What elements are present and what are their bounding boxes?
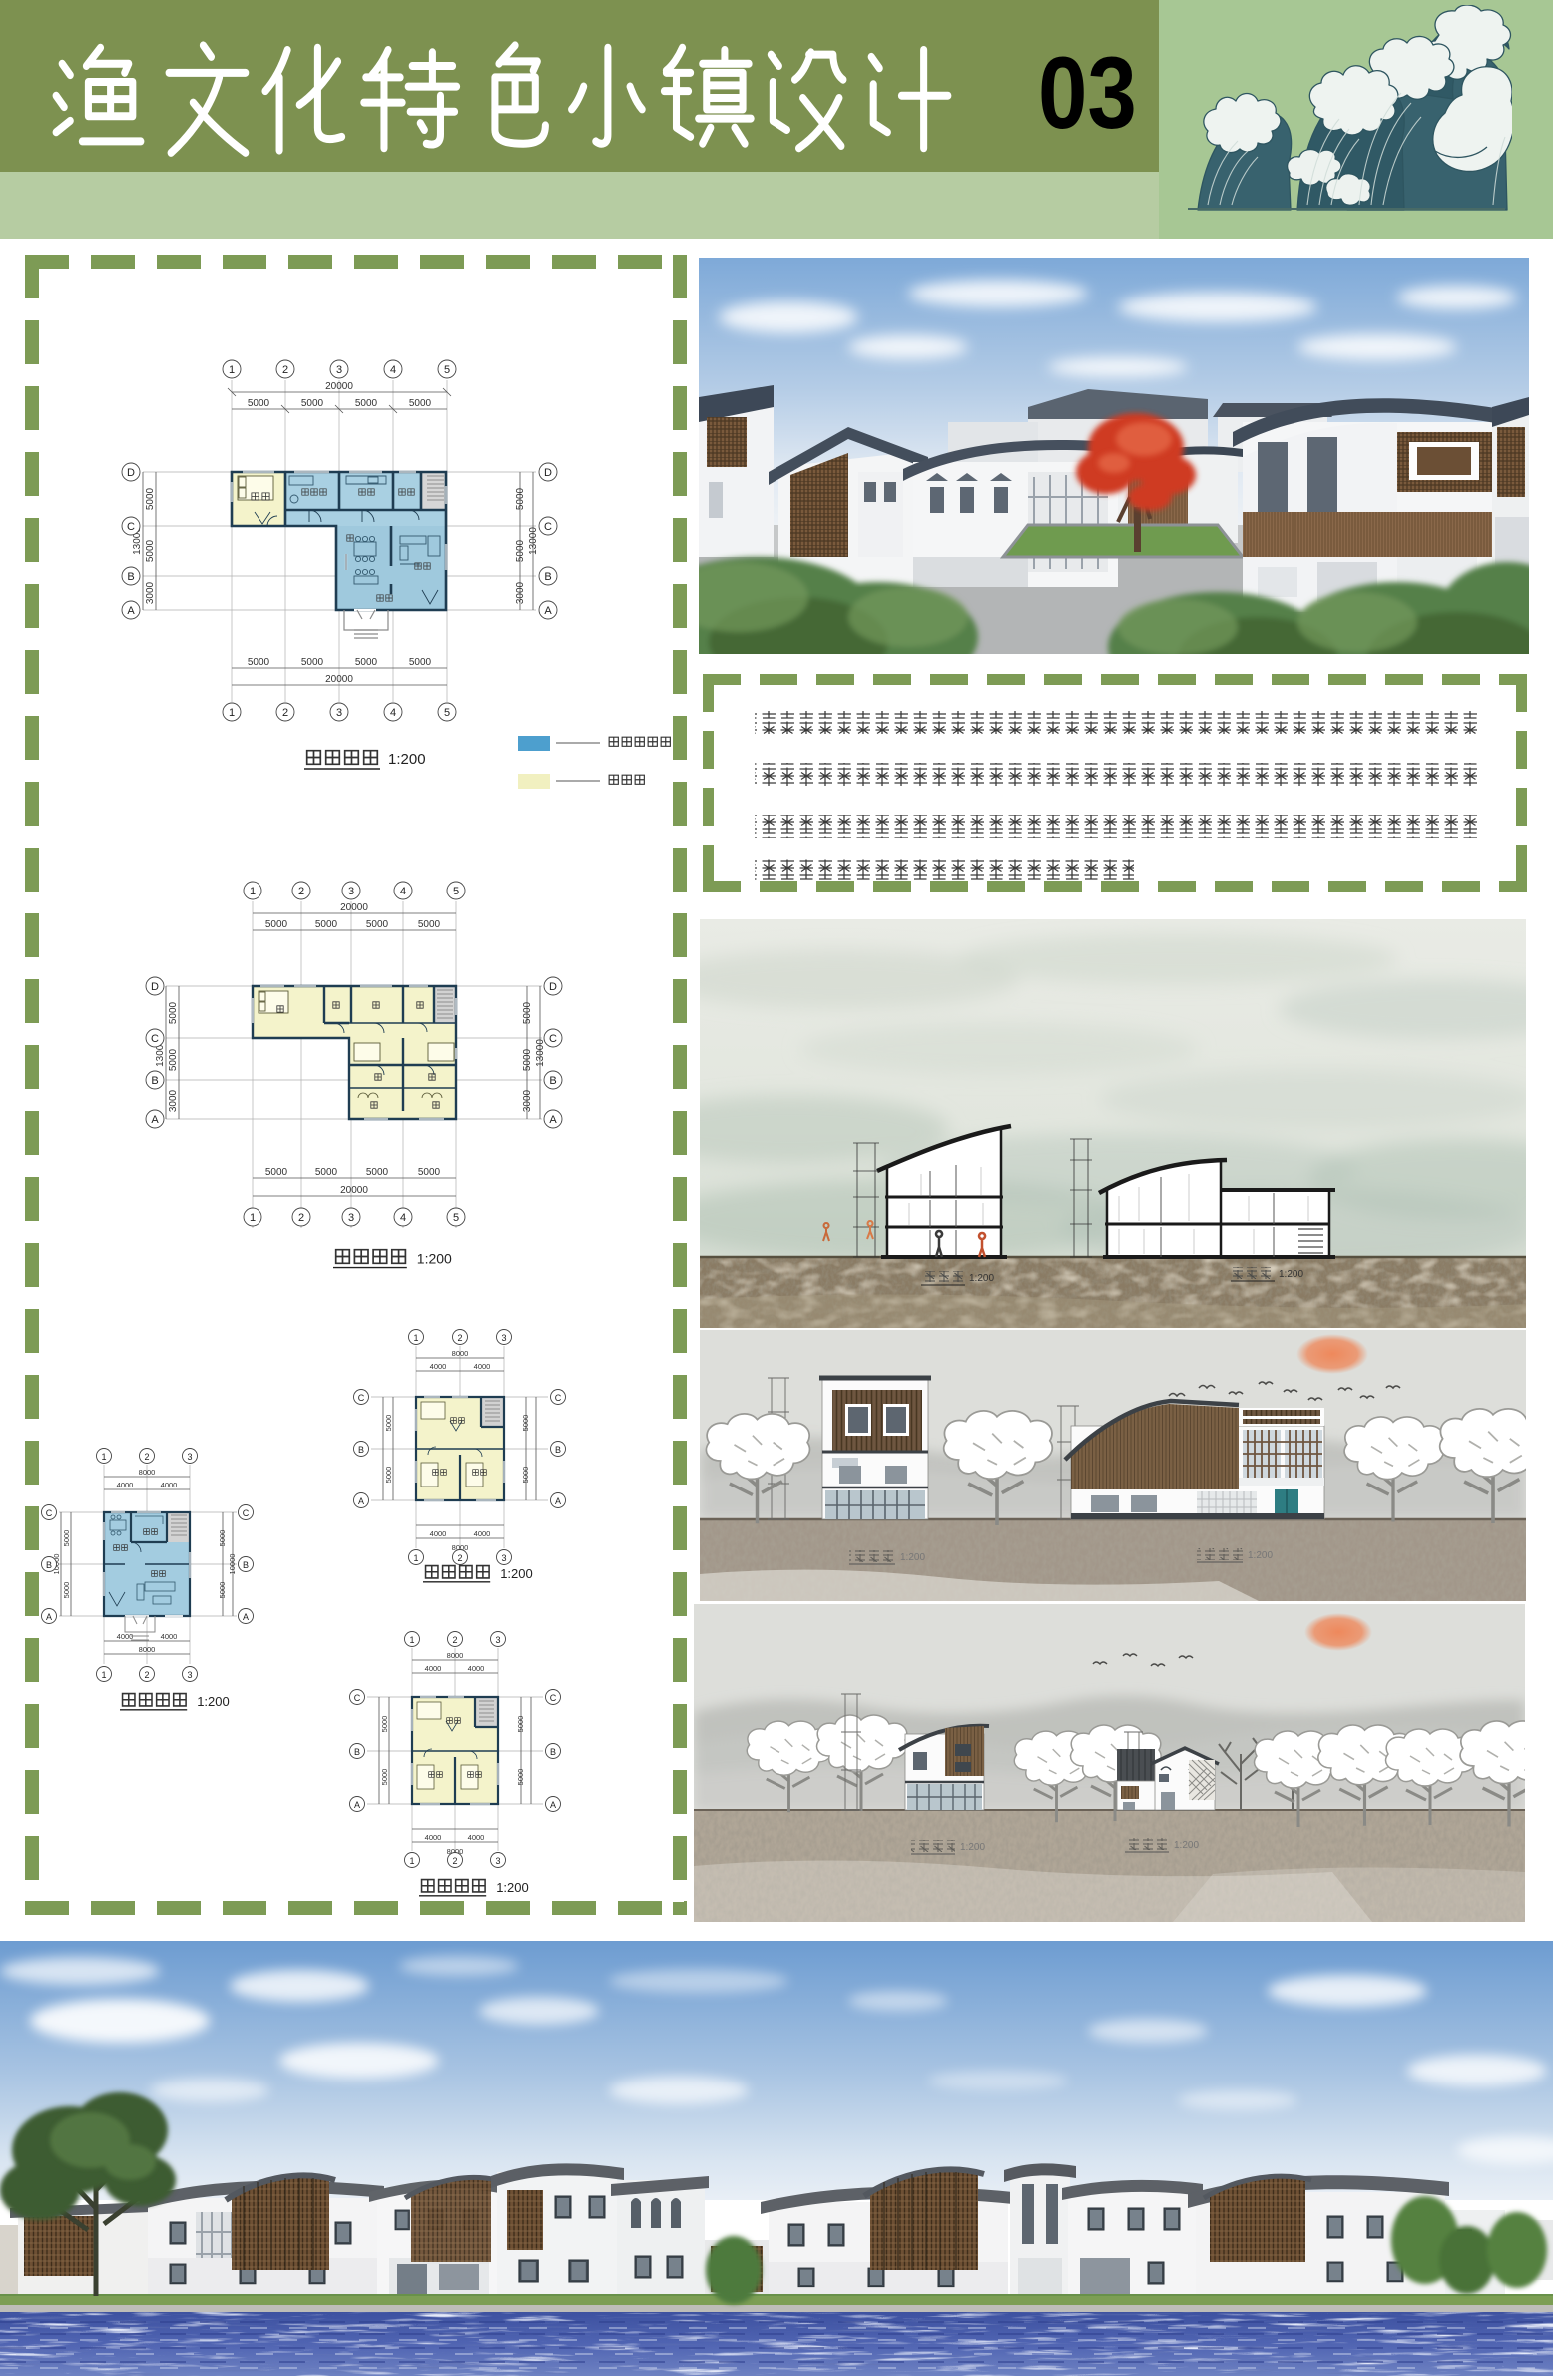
svg-text:3: 3 (187, 1452, 192, 1462)
svg-text:5000: 5000 (248, 657, 270, 668)
svg-text:1: 1 (413, 1333, 418, 1343)
svg-text:20000: 20000 (325, 674, 353, 685)
svg-text:C: C (555, 1393, 562, 1403)
svg-text:A: A (127, 605, 135, 617)
svg-text:5: 5 (453, 886, 459, 897)
svg-text:1: 1 (101, 1670, 106, 1680)
svg-text:4000: 4000 (474, 1529, 491, 1538)
svg-text:5000: 5000 (515, 539, 526, 562)
svg-text:1:200: 1:200 (900, 1552, 925, 1563)
svg-text:20000: 20000 (340, 902, 368, 913)
svg-text:5000: 5000 (315, 919, 338, 930)
svg-text:3: 3 (187, 1670, 192, 1680)
svg-text:5000: 5000 (384, 1415, 393, 1432)
svg-text:4000: 4000 (430, 1362, 447, 1371)
svg-text:1:200: 1:200 (1174, 1840, 1199, 1851)
svg-text:C: C (354, 1693, 361, 1703)
svg-text:1:200: 1:200 (1279, 1269, 1303, 1280)
svg-text:4000: 4000 (468, 1833, 485, 1842)
svg-text:B: B (354, 1747, 360, 1757)
svg-text:4000: 4000 (161, 1632, 178, 1641)
svg-text:5000: 5000 (418, 919, 441, 930)
svg-text:B: B (555, 1445, 561, 1455)
svg-text:5000: 5000 (301, 398, 324, 409)
svg-text:1:200: 1:200 (496, 1880, 529, 1895)
svg-text:5000: 5000 (516, 1769, 525, 1786)
svg-text:1:200: 1:200 (417, 1250, 452, 1266)
svg-text:1: 1 (250, 886, 256, 897)
svg-text:D: D (151, 981, 159, 993)
svg-text:4000: 4000 (430, 1529, 447, 1538)
svg-text:4000: 4000 (117, 1632, 134, 1641)
svg-text:3000: 3000 (168, 1089, 179, 1112)
svg-text:5000: 5000 (521, 1467, 530, 1484)
svg-text:1:200: 1:200 (197, 1694, 230, 1709)
svg-text:1:200: 1:200 (388, 751, 426, 768)
svg-text:C: C (544, 521, 552, 533)
svg-text:1: 1 (250, 1212, 256, 1224)
svg-text:5000: 5000 (409, 657, 432, 668)
svg-text:5: 5 (444, 364, 450, 376)
svg-text:3000: 3000 (522, 1089, 533, 1112)
svg-text:B: B (127, 571, 134, 583)
svg-text:5000: 5000 (418, 1167, 441, 1178)
svg-text:5000: 5000 (145, 487, 156, 510)
svg-text:1: 1 (101, 1452, 106, 1462)
svg-text:2: 2 (452, 1635, 457, 1645)
svg-text:B: B (358, 1445, 364, 1455)
svg-text:4000: 4000 (474, 1362, 491, 1371)
svg-text:3: 3 (495, 1635, 500, 1645)
svg-text:5000: 5000 (380, 1769, 389, 1786)
svg-text:13000: 13000 (535, 1039, 546, 1067)
svg-text:4: 4 (390, 707, 396, 719)
svg-text:1: 1 (409, 1635, 414, 1645)
svg-text:2: 2 (457, 1553, 462, 1563)
svg-text:1: 1 (413, 1553, 418, 1563)
svg-text:20000: 20000 (340, 1185, 368, 1196)
svg-text:3: 3 (348, 1212, 354, 1224)
svg-text:4000: 4000 (468, 1664, 485, 1673)
svg-text:C: C (243, 1508, 250, 1518)
svg-text:2: 2 (144, 1670, 149, 1680)
svg-text:5000: 5000 (516, 1716, 525, 1733)
svg-text:5000: 5000 (515, 487, 526, 510)
svg-text:D: D (127, 467, 135, 479)
svg-text:B: B (549, 1075, 556, 1087)
svg-text:1: 1 (229, 707, 235, 719)
svg-text:3: 3 (336, 364, 342, 376)
svg-text:5000: 5000 (62, 1530, 71, 1547)
svg-text:5000: 5000 (522, 1048, 533, 1071)
svg-text:5: 5 (453, 1212, 459, 1224)
svg-text:2: 2 (452, 1856, 457, 1866)
svg-text:1:200: 1:200 (960, 1842, 985, 1853)
svg-text:B: B (544, 571, 551, 583)
svg-text:A: A (550, 1800, 556, 1810)
svg-text:13000: 13000 (528, 527, 539, 555)
svg-text:5000: 5000 (301, 657, 324, 668)
svg-text:A: A (46, 1612, 52, 1622)
svg-text:5000: 5000 (355, 398, 378, 409)
svg-text:A: A (354, 1800, 360, 1810)
svg-text:8000: 8000 (139, 1468, 156, 1477)
svg-text:3: 3 (336, 707, 342, 719)
svg-text:C: C (550, 1693, 557, 1703)
svg-text:C: C (358, 1393, 365, 1403)
svg-text:5000: 5000 (168, 1001, 179, 1024)
svg-text:3000: 3000 (145, 581, 156, 604)
svg-text:4000: 4000 (425, 1833, 442, 1842)
svg-text:3: 3 (495, 1856, 500, 1866)
svg-text:1: 1 (229, 364, 235, 376)
svg-text:D: D (549, 981, 557, 993)
svg-text:A: A (549, 1114, 557, 1126)
svg-text:C: C (151, 1033, 159, 1045)
svg-text:1:200: 1:200 (1248, 1550, 1273, 1561)
svg-text:5000: 5000 (521, 1415, 530, 1432)
svg-text:C: C (549, 1033, 557, 1045)
svg-text:2: 2 (457, 1333, 462, 1343)
svg-text:1:200: 1:200 (500, 1566, 533, 1581)
svg-text:A: A (544, 605, 552, 617)
svg-text:B: B (46, 1560, 52, 1570)
svg-text:5000: 5000 (145, 539, 156, 562)
svg-text:5000: 5000 (218, 1582, 227, 1599)
svg-text:5000: 5000 (409, 398, 432, 409)
svg-text:4: 4 (400, 886, 406, 897)
svg-text:2: 2 (282, 707, 288, 719)
svg-text:2: 2 (282, 364, 288, 376)
svg-text:A: A (358, 1496, 364, 1506)
svg-text:20000: 20000 (325, 381, 353, 392)
svg-text:5000: 5000 (62, 1582, 71, 1599)
svg-text:3000: 3000 (515, 581, 526, 604)
svg-text:5000: 5000 (366, 919, 389, 930)
svg-text:1:200: 1:200 (969, 1273, 994, 1284)
svg-text:5000: 5000 (315, 1167, 338, 1178)
svg-text:B: B (243, 1560, 249, 1570)
svg-text:A: A (151, 1114, 159, 1126)
svg-text:A: A (243, 1612, 249, 1622)
svg-text:10000: 10000 (228, 1554, 237, 1575)
svg-text:4: 4 (390, 364, 396, 376)
svg-text:D: D (544, 467, 552, 479)
svg-text:5000: 5000 (355, 657, 378, 668)
svg-text:B: B (550, 1747, 556, 1757)
svg-text:5: 5 (444, 707, 450, 719)
svg-text:5000: 5000 (265, 1167, 288, 1178)
svg-text:5000: 5000 (265, 919, 288, 930)
svg-text:2: 2 (298, 1212, 304, 1224)
svg-text:4000: 4000 (425, 1664, 442, 1673)
svg-text:8000: 8000 (452, 1349, 469, 1358)
svg-text:4: 4 (400, 1212, 406, 1224)
svg-text:B: B (151, 1075, 158, 1087)
svg-text:2: 2 (144, 1452, 149, 1462)
svg-text:4000: 4000 (161, 1481, 178, 1489)
svg-text:A: A (555, 1496, 561, 1506)
svg-text:5000: 5000 (366, 1167, 389, 1178)
svg-text:2: 2 (298, 886, 304, 897)
svg-text:C: C (46, 1508, 53, 1518)
svg-text:5000: 5000 (218, 1530, 227, 1547)
svg-text:3: 3 (501, 1333, 506, 1343)
svg-text:8000: 8000 (447, 1651, 464, 1660)
svg-text:4000: 4000 (117, 1481, 134, 1489)
svg-text:5000: 5000 (384, 1467, 393, 1484)
svg-text:3: 3 (501, 1553, 506, 1563)
svg-text:5000: 5000 (380, 1716, 389, 1733)
svg-text:5000: 5000 (522, 1001, 533, 1024)
svg-text:5000: 5000 (248, 398, 270, 409)
svg-text:3: 3 (348, 886, 354, 897)
svg-text:1: 1 (409, 1856, 414, 1866)
svg-text:C: C (127, 521, 135, 533)
svg-text:5000: 5000 (168, 1048, 179, 1071)
svg-text:8000: 8000 (139, 1645, 156, 1654)
